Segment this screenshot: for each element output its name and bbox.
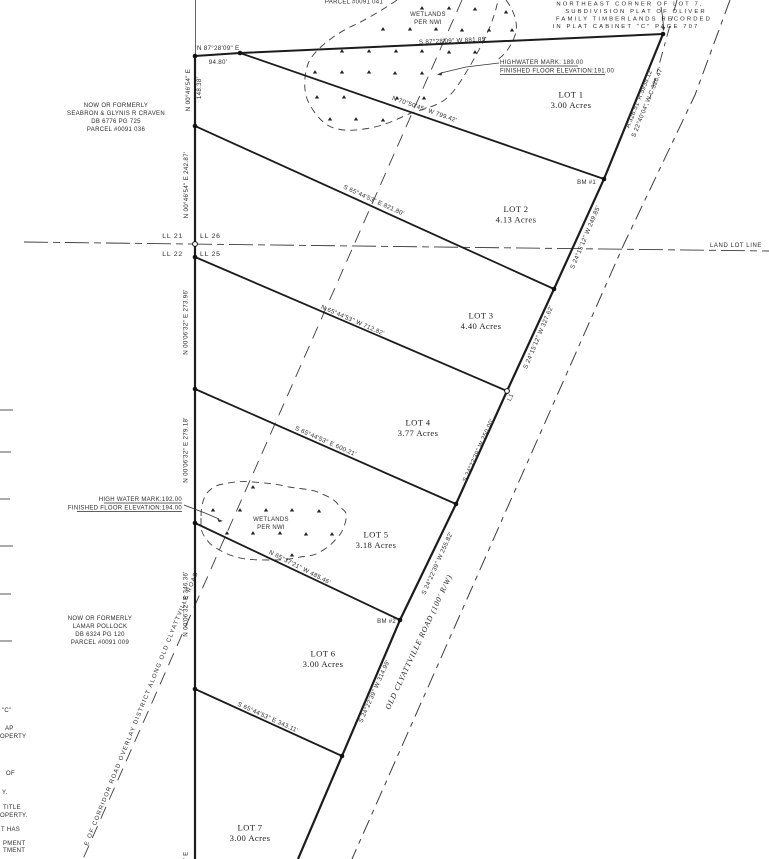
svg-text:WETLANDS: WETLANDS: [410, 12, 446, 18]
svg-text:4.13 Acres: 4.13 Acres: [496, 215, 537, 225]
svg-text:"C": "C": [2, 708, 12, 714]
svg-text:OF: OF: [6, 771, 15, 777]
svg-text:IN PLAT CABINET "C" PAGE: IN PLAT CABINET "C" PAGE 707: [553, 24, 700, 30]
svg-text:N 00'06'32" E 273.96': N 00'06'32" E 273.96': [183, 289, 190, 354]
svg-text:N 00'06'32" E 279.18': N 00'06'32" E 279.18': [183, 417, 190, 482]
svg-text:OPERTY: OPERTY: [0, 734, 26, 740]
svg-text:WETLANDS: WETLANDS: [253, 517, 289, 523]
svg-text:LL 26: LL 26: [200, 233, 221, 240]
svg-text:HIGHWATER MARK: 189.00: HIGHWATER MARK: 189.00: [500, 60, 584, 66]
svg-text:LL 22: LL 22: [162, 251, 183, 258]
svg-text:NORTHEAST CORNER OF LOT 7,: NORTHEAST CORNER OF LOT 7,: [556, 2, 703, 8]
svg-text:NOW OR FORMERLY: NOW OR FORMERLY: [68, 616, 132, 622]
svg-text:LOT 2: LOT 2: [504, 204, 529, 214]
svg-text:BM #2: BM #2: [377, 619, 396, 625]
svg-text:3.00 Acres: 3.00 Acres: [551, 100, 592, 110]
svg-text:PMENT: PMENT: [3, 841, 26, 847]
svg-text:N 00°46'54" E 242.87': N 00°46'54" E 242.87': [183, 152, 190, 219]
svg-text:LOT 4: LOT 4: [406, 418, 431, 428]
svg-text:3.00 Acres: 3.00 Acres: [303, 659, 344, 669]
svg-text:94.80': 94.80': [209, 59, 227, 66]
svg-text:FAMILY TIMBERLANDS RECORDED: FAMILY TIMBERLANDS RECORDED: [556, 17, 712, 23]
svg-text:DB 6776 PG 725: DB 6776 PG 725: [91, 119, 141, 125]
svg-text:148.38': 148.38': [196, 77, 203, 99]
svg-text:LAMAR POLLOCK: LAMAR POLLOCK: [73, 624, 128, 630]
svg-text:3.18 Acres: 3.18 Acres: [356, 540, 397, 550]
svg-text:N 00'06'32" E 346.36': N 00'06'32" E 346.36': [183, 571, 190, 636]
svg-text:4.40 Acres: 4.40 Acres: [461, 321, 502, 331]
svg-text:PARCEL #0091 009: PARCEL #0091 009: [71, 640, 130, 646]
svg-text:LL 25: LL 25: [200, 251, 221, 258]
svg-text:AP: AP: [5, 726, 14, 732]
svg-text:PER NWI: PER NWI: [414, 20, 442, 26]
svg-text:FINISHED FLOOR ELEVATION:194: FINISHED FLOOR ELEVATION:194.00: [68, 506, 182, 512]
svg-text:LOT 6: LOT 6: [311, 649, 336, 659]
svg-text:SEABRON & GLYNIS R CRAVEN: SEABRON & GLYNIS R CRAVEN: [67, 111, 165, 117]
svg-text:TMENT: TMENT: [3, 848, 25, 854]
svg-text:PER NWI: PER NWI: [257, 525, 285, 531]
svg-text:FINISHED FLOOR ELEVATION:191: FINISHED FLOOR ELEVATION:191.00: [500, 69, 614, 75]
svg-text:DB 6324 PG 120: DB 6324 PG 120: [75, 632, 125, 638]
svg-text:Y.: Y.: [2, 790, 8, 796]
svg-text:PARCEL #0091 036: PARCEL #0091 036: [87, 127, 146, 133]
svg-text:PARCEL #0091 041: PARCEL #0091 041: [325, 0, 384, 6]
svg-text:LAND LOT LINE: LAND LOT LINE: [710, 243, 762, 249]
svg-text:LOT 5: LOT 5: [364, 530, 389, 540]
svg-text:3.77 Acres: 3.77 Acres: [398, 428, 439, 438]
svg-text:HIGH WATER MARK:192.00: HIGH WATER MARK:192.00: [99, 497, 183, 503]
svg-text:BM #1: BM #1: [577, 180, 596, 186]
svg-text:SUBDIVISION PLAT OF OLIVER: SUBDIVISION PLAT OF OLIVER: [565, 9, 706, 15]
svg-text:N 87°28'09" E: N 87°28'09" E: [197, 45, 239, 52]
svg-text:LOT 7: LOT 7: [238, 823, 263, 833]
svg-text:T HAS: T HAS: [1, 827, 20, 833]
svg-text:LOT 1: LOT 1: [559, 90, 584, 100]
svg-text:3.00 Acres: 3.00 Acres: [230, 833, 271, 843]
svg-text:LOT 3: LOT 3: [469, 311, 494, 321]
svg-text:LL 21: LL 21: [162, 233, 183, 240]
svg-text:N 00°46'54" E: N 00°46'54" E: [185, 69, 192, 111]
svg-text:N 00'06'32" E: N 00'06'32" E: [183, 851, 190, 859]
svg-text:NOW OR FORMERLY: NOW OR FORMERLY: [84, 103, 148, 109]
svg-text:OPERTY.: OPERTY.: [0, 813, 28, 819]
svg-text:TITLE: TITLE: [3, 805, 21, 811]
